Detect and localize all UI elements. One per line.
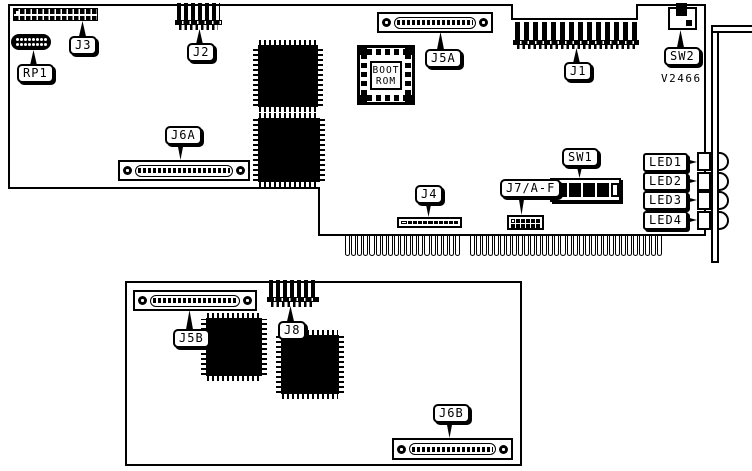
connector-slot [394,17,476,29]
callout-j6b: J6B [433,404,470,423]
mounting-bracket-arm [713,25,752,33]
part-number: V2466 [661,72,702,85]
qfp-chip-1 [253,40,323,112]
pin-header-j2-pins [177,3,220,20]
pin1-marker [16,11,20,15]
callout-tail-j1 [572,48,581,63]
led4-dome [719,211,729,230]
socket-corner [405,48,412,55]
led3-dome [719,191,729,210]
callout-led1: LED1 [643,153,688,172]
callout-tail-j5a [436,32,445,49]
callout-j8: J8 [278,321,306,340]
callout-tail-sw2 [676,30,685,47]
socket-ticks-top [367,49,405,55]
board-notch-bottom [511,18,638,20]
pin-header-j2-leads [179,25,218,30]
screw-icon [397,445,406,454]
callout-j7af: J7/A-F [500,179,561,198]
mounting-bracket-vertical [711,25,719,263]
qfp-chip-3 [201,313,267,381]
connector-slot [135,165,233,177]
callout-j4: J4 [415,185,443,204]
socket-corner [405,95,412,102]
board-edge-step [318,187,320,236]
callout-j5b: J5B [173,329,210,348]
led3-body [697,191,711,210]
pin-header-j8-pins [269,280,317,297]
callout-tail-j3 [78,21,87,36]
socket-corner [360,48,367,55]
boot-rom-socket: BOOT ROM [357,45,415,105]
callout-rp1: RP1 [17,64,54,83]
led4-body [697,211,711,230]
callout-j5a: J5A [425,49,462,68]
connector-j6a [118,160,250,181]
connector-j1-leads [517,45,635,49]
callout-sw2: SW2 [664,47,701,66]
switch-actuator [676,3,687,16]
connector-j6b [392,438,513,460]
connector-j3 [13,8,98,21]
resistor-pack-rp1 [11,34,51,50]
board-edge-bottom-left [8,187,320,189]
boot-rom-text-line2: ROM [376,76,396,87]
edge-connector-fingers-group2 [470,236,662,256]
qfp-chip-4 [276,330,344,399]
callout-led3: LED3 [643,191,688,210]
jumper-block-j4 [397,217,462,228]
pin-header-j8-leads [271,302,315,307]
screw-icon [236,166,245,175]
boot-rom-text-line1: BOOT [373,65,400,76]
callout-j2: J2 [187,43,215,62]
screw-icon [479,18,488,27]
screw-icon [382,18,391,27]
boot-rom-chip: BOOT ROM [370,61,402,90]
board-notch-right [636,4,638,20]
socket-ticks-bottom [367,95,405,101]
header-j7af [507,215,544,230]
callout-j1: J1 [564,62,592,81]
screw-icon [243,296,252,305]
led1-body [697,152,711,171]
screw-icon [499,445,508,454]
connector-j5b [133,290,257,311]
callout-led4: LED4 [643,211,688,230]
edge-connector-fingers-group1 [345,236,460,256]
screw-icon [138,296,147,305]
switch-dot [686,20,692,26]
callout-j3: J3 [69,36,97,55]
board-edge-top-right [636,4,706,6]
board-edge-top-left [8,4,513,6]
socket-ticks-left [361,55,367,95]
socket-corner [360,95,367,102]
qfp-chip-2 [253,113,325,187]
connector-j5a [377,12,493,33]
callout-j6a: J6A [165,126,202,145]
led2-dome [719,172,729,191]
callout-tail-j2 [195,29,204,44]
screw-icon [123,166,132,175]
connector-slot [150,295,240,307]
callout-sw1: SW1 [562,148,599,167]
led2-body [697,172,711,191]
callout-led2: LED2 [643,172,688,191]
callout-tail-rp1 [29,50,38,65]
pcb-diagram: BOOT ROM [0,0,752,471]
socket-ticks-right [405,55,411,95]
connector-slot [409,443,496,455]
switch-sw2 [668,7,697,30]
board-edge-left [8,4,10,189]
led1-dome [719,152,729,171]
connector-j1-pins [515,22,637,40]
